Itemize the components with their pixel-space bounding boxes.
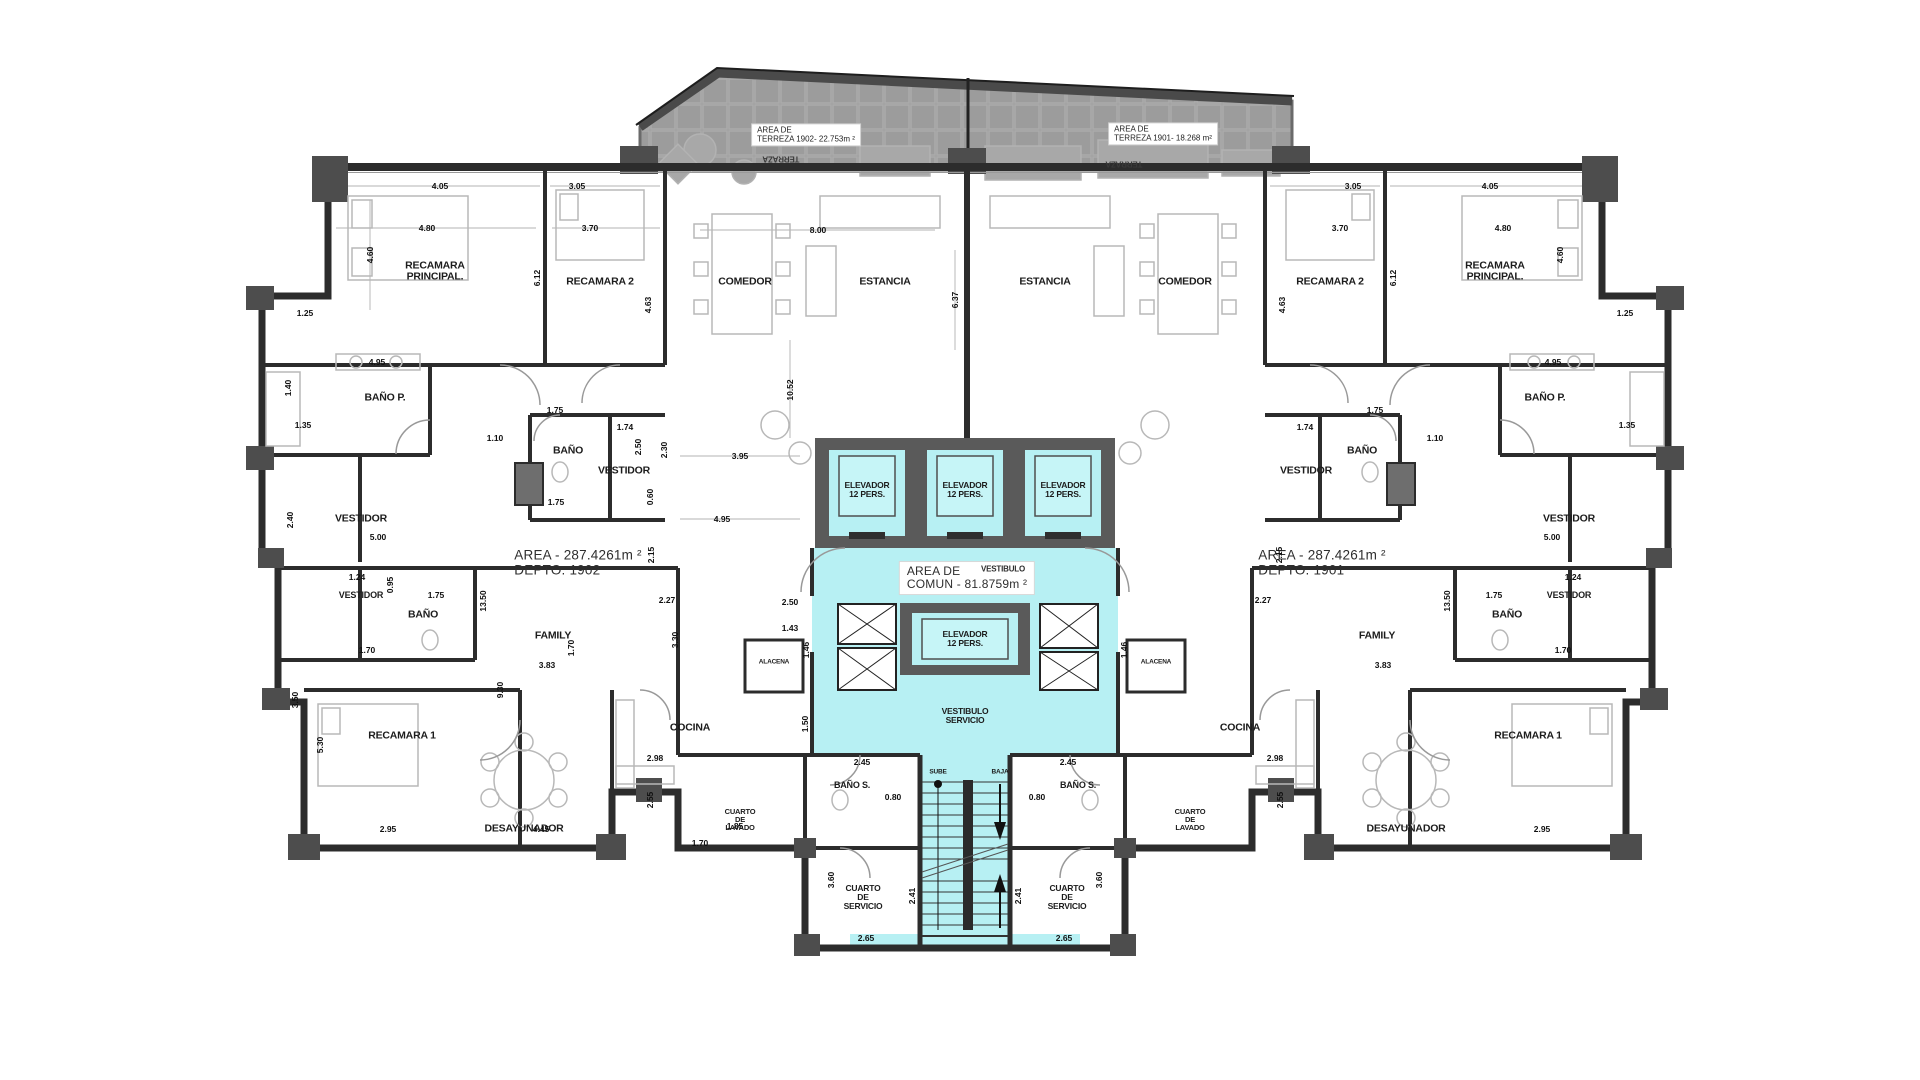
stair-stringer [963, 780, 973, 930]
elevator-cabins [829, 450, 1101, 539]
central-elevator [900, 603, 1030, 675]
floor-plan-canvas: { "document": {"type": "architectural-fl… [0, 0, 1920, 1080]
floor-plan-drawing [0, 0, 1920, 1080]
elevator-bank [815, 438, 1115, 548]
